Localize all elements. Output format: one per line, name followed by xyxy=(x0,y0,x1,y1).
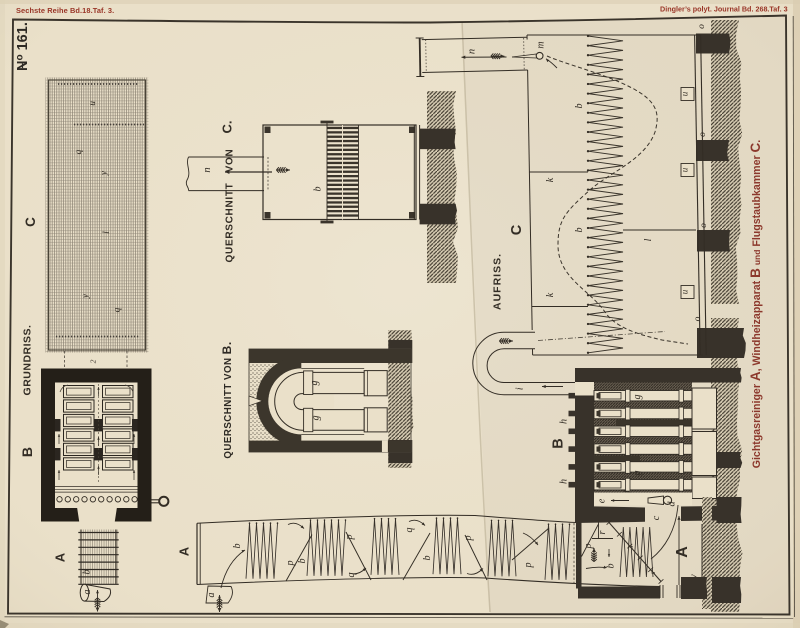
svg-text:n: n xyxy=(202,167,213,172)
svg-text:g: g xyxy=(309,381,320,386)
svg-text:QUERSCHNITT VON B.: QUERSCHNITT VON B. xyxy=(220,341,234,458)
svg-text:p: p xyxy=(285,561,296,567)
svg-text:l: l xyxy=(102,231,112,234)
svg-text:g: g xyxy=(310,416,321,421)
svg-text:Gichtgasreiniger A, Windheizap: Gichtgasreiniger A, Windheizapparat B un… xyxy=(748,140,763,469)
svg-text:i: i xyxy=(515,387,526,390)
svg-text:p: p xyxy=(583,544,594,550)
svg-text:a: a xyxy=(206,593,217,598)
svg-text:o: o xyxy=(693,316,703,321)
svg-text:b: b xyxy=(422,556,433,561)
svg-text:s: s xyxy=(627,545,635,548)
svg-text:A: A xyxy=(53,552,68,562)
svg-text:A: A xyxy=(674,546,691,558)
svg-text:b: b xyxy=(82,570,93,575)
svg-text:b: b xyxy=(297,559,308,564)
svg-text:y: y xyxy=(100,170,110,176)
svg-text:u: u xyxy=(680,91,690,96)
svg-text:c: c xyxy=(651,515,662,520)
svg-text:u: u xyxy=(680,167,690,172)
svg-text:u: u xyxy=(680,289,690,294)
svg-text:p: p xyxy=(463,536,474,542)
svg-text:h: h xyxy=(559,479,570,484)
svg-text:h: h xyxy=(559,419,570,424)
svg-text:o: o xyxy=(699,223,709,228)
svg-text:p: p xyxy=(344,535,355,541)
svg-text:C: C xyxy=(23,217,38,227)
svg-text:q: q xyxy=(74,149,84,154)
svg-text:2: 2 xyxy=(89,359,98,363)
svg-text:g: g xyxy=(632,395,643,400)
svg-text:b: b xyxy=(606,564,617,569)
svg-text:b: b xyxy=(313,187,324,192)
svg-text:e: e xyxy=(597,498,608,503)
svg-text:AUFRISS.: AUFRISS. xyxy=(492,253,504,310)
svg-text:b: b xyxy=(232,544,243,549)
svg-text:VON: VON xyxy=(225,149,236,173)
svg-text:o: o xyxy=(698,132,708,137)
svg-text:B: B xyxy=(551,438,567,448)
svg-text:k: k xyxy=(545,177,556,182)
svg-text:Dingler’s polyt. Journal Bd. 2: Dingler’s polyt. Journal Bd. 268.Taf. 3 xyxy=(660,5,788,14)
svg-text:q: q xyxy=(112,307,122,312)
svg-text:g: g xyxy=(632,471,643,476)
svg-text:B: B xyxy=(19,447,35,457)
svg-text:r: r xyxy=(597,530,608,534)
svg-text:q: q xyxy=(404,528,415,533)
svg-text:k: k xyxy=(545,292,556,297)
svg-text:GRUNDRISS.: GRUNDRISS. xyxy=(22,325,34,396)
svg-text:a: a xyxy=(82,590,93,595)
svg-text:l: l xyxy=(643,238,654,241)
svg-text:q: q xyxy=(346,573,357,578)
svg-text:p: p xyxy=(523,563,534,569)
svg-text:y: y xyxy=(81,293,91,299)
svg-text:C: C xyxy=(509,224,525,235)
svg-text:m: m xyxy=(536,41,547,48)
svg-text:QUERSCHNITT: QUERSCHNITT xyxy=(225,183,236,263)
svg-text:C.: C. xyxy=(220,121,235,134)
svg-text:b: b xyxy=(574,228,585,233)
svg-text:o: o xyxy=(697,24,707,29)
svg-text:A: A xyxy=(176,546,191,556)
svg-text:u: u xyxy=(88,101,98,106)
svg-text:Sechste Reihe Bd.18.Taf. 3.: Sechste Reihe Bd.18.Taf. 3. xyxy=(16,6,114,15)
svg-text:b: b xyxy=(574,104,585,109)
svg-text:n: n xyxy=(466,49,477,54)
svg-text:s: s xyxy=(649,571,657,574)
